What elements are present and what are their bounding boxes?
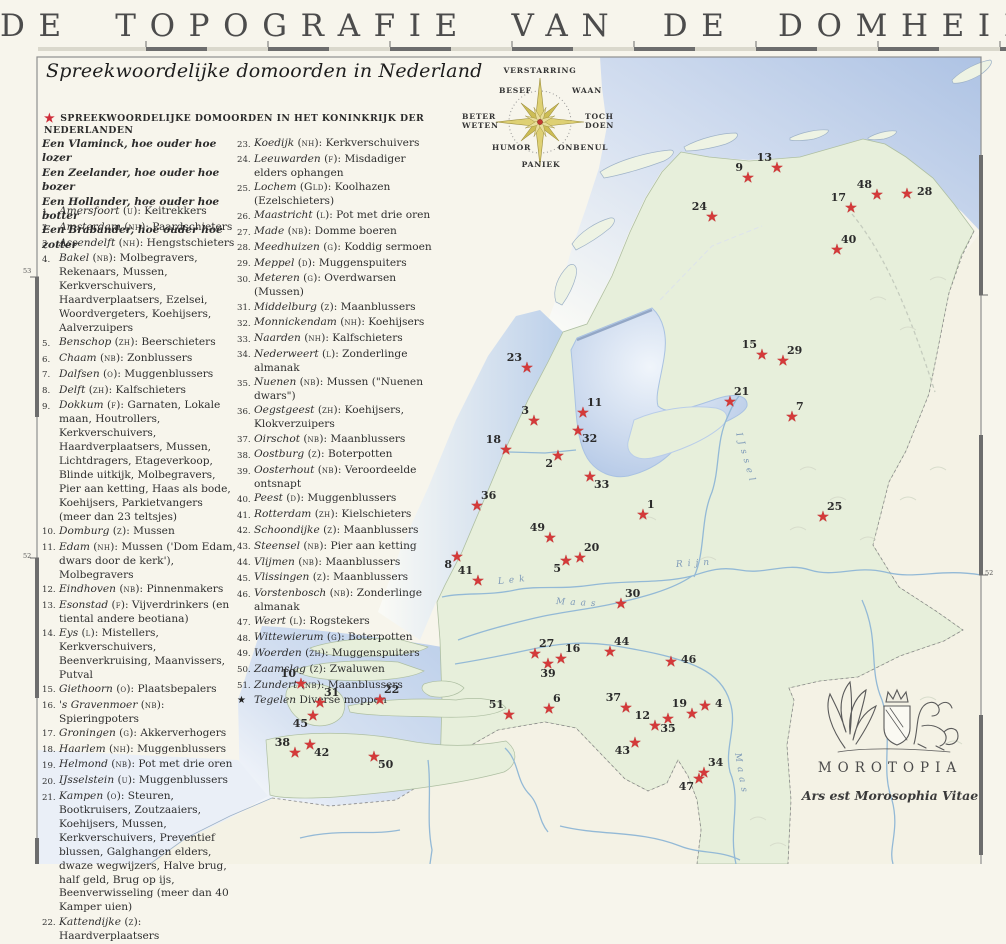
map-star-45: ★ bbox=[306, 709, 319, 724]
map-star-label-9: 9 bbox=[735, 162, 743, 173]
entry-number: 22. bbox=[42, 916, 59, 944]
map-star-label-13: 13 bbox=[757, 152, 772, 163]
map-star-5: ★ bbox=[559, 554, 572, 569]
map-star-label-48: 48 bbox=[857, 179, 872, 190]
map-star-label-37: 37 bbox=[606, 692, 621, 703]
map-star-label-8: 8 bbox=[444, 559, 452, 570]
map-star-label-39: 39 bbox=[540, 668, 555, 679]
map-star-label-5: 5 bbox=[553, 563, 561, 574]
map-star-label-47: 47 bbox=[679, 781, 694, 792]
map-star-label-6: 6 bbox=[553, 693, 561, 704]
map-star-17: ★ bbox=[844, 201, 857, 216]
legend-entry-22: 22.Kattendijke (z): Haardverplaatsers bbox=[42, 916, 236, 944]
map-star-label-20: 20 bbox=[584, 542, 599, 553]
map-star-label-29: 29 bbox=[787, 345, 802, 356]
entry-text: Kattendijke (z): Haardverplaatsers bbox=[59, 916, 236, 944]
map-star-label-3: 3 bbox=[521, 405, 529, 416]
map-star-label-35: 35 bbox=[660, 723, 675, 734]
map-star-23: ★ bbox=[520, 361, 533, 376]
latitude-label-1: 52 bbox=[23, 552, 31, 560]
map-star-label-12: 12 bbox=[635, 710, 650, 721]
map-star-24: ★ bbox=[705, 210, 718, 225]
map-star-label-11: 11 bbox=[587, 397, 602, 408]
map-star-10: ★ bbox=[294, 677, 307, 692]
map-stars-layer: ★13★9★24★48★17★28★40★15★29★21★7★23★3★11★… bbox=[0, 0, 1006, 864]
map-star-label-40: 40 bbox=[841, 234, 856, 245]
map-star-28: ★ bbox=[900, 187, 913, 202]
river-label-maas-2: Maas bbox=[556, 597, 601, 609]
map-star-51: ★ bbox=[502, 708, 515, 723]
map-star-label-33: 33 bbox=[594, 479, 609, 490]
map-star-label-28: 28 bbox=[917, 186, 932, 197]
latitude-label-0: 53 bbox=[23, 267, 31, 275]
map-star-label-50: 50 bbox=[378, 759, 393, 770]
map-star-label-27: 27 bbox=[539, 638, 554, 649]
map-star-label-36: 36 bbox=[481, 490, 496, 501]
map-star-37: ★ bbox=[619, 701, 632, 716]
morotopia-motto: Ars est Morosophia Vitae bbox=[798, 788, 982, 803]
map-star-label-10: 10 bbox=[281, 668, 296, 679]
map-star-label-2: 2 bbox=[545, 458, 553, 469]
map-star-label-18: 18 bbox=[486, 434, 501, 445]
map-star-label-25: 25 bbox=[827, 501, 842, 512]
map-star-label-21: 21 bbox=[734, 386, 749, 397]
map-star-label-24: 24 bbox=[692, 201, 707, 212]
map-star-label-42: 42 bbox=[314, 747, 329, 758]
map-star-13: ★ bbox=[770, 161, 783, 176]
map-star-label-51: 51 bbox=[489, 699, 504, 710]
river-label-maas-3: Maas bbox=[732, 752, 750, 798]
map-star-label-38: 38 bbox=[275, 737, 290, 748]
latitude-label-2: 52 bbox=[985, 569, 993, 577]
map-star-18: ★ bbox=[499, 443, 512, 458]
map-star-label-30: 30 bbox=[625, 588, 640, 599]
map-star-label-34: 34 bbox=[708, 757, 723, 768]
map-star-4: ★ bbox=[698, 699, 711, 714]
map-star-label-17: 17 bbox=[831, 192, 846, 203]
map-star-48: ★ bbox=[870, 188, 883, 203]
map-star-41: ★ bbox=[471, 574, 484, 589]
map-star-43: ★ bbox=[628, 736, 641, 751]
map-star-label-19: 19 bbox=[672, 698, 687, 709]
map-star-label-43: 43 bbox=[615, 745, 630, 756]
map-star-label-1: 1 bbox=[647, 499, 655, 510]
map-star-label-44: 44 bbox=[614, 636, 629, 647]
map-star-label-32: 32 bbox=[582, 433, 597, 444]
map-star-label-4: 4 bbox=[715, 698, 723, 709]
map-star-15: ★ bbox=[755, 348, 768, 363]
map-star-49: ★ bbox=[543, 531, 556, 546]
map-star-label-7: 7 bbox=[796, 401, 804, 412]
map-star-label-15: 15 bbox=[742, 339, 757, 350]
map-star-9: ★ bbox=[741, 171, 754, 186]
map-star-label-16: 16 bbox=[565, 643, 580, 654]
map-star-38: ★ bbox=[288, 746, 301, 761]
river-label-rijn-1: Rijn bbox=[676, 557, 715, 570]
map-star-19: ★ bbox=[685, 707, 698, 722]
map-star-label-49: 49 bbox=[530, 522, 545, 533]
morotopia-title: MOROTOPIA bbox=[808, 760, 972, 776]
map-star-label-23: 23 bbox=[507, 352, 522, 363]
river-label-lek-0: Lek bbox=[497, 574, 530, 587]
map-star-2: ★ bbox=[551, 449, 564, 464]
map-poster: { "title": "DE TOPOGRAFIE VAN DE DOMHEID… bbox=[0, 0, 1006, 864]
map-star-3: ★ bbox=[527, 414, 540, 429]
map-star-47: ★ bbox=[692, 772, 705, 787]
map-star-label-46: 46 bbox=[681, 654, 696, 665]
river-label-ijssel-4: IJssel bbox=[733, 432, 758, 487]
map-star-label-31: 31 bbox=[324, 687, 339, 698]
map-star-46: ★ bbox=[664, 655, 677, 670]
map-star-label-41: 41 bbox=[458, 565, 473, 576]
map-star-label-45: 45 bbox=[293, 718, 308, 729]
map-star-label-22: 22 bbox=[384, 684, 399, 695]
